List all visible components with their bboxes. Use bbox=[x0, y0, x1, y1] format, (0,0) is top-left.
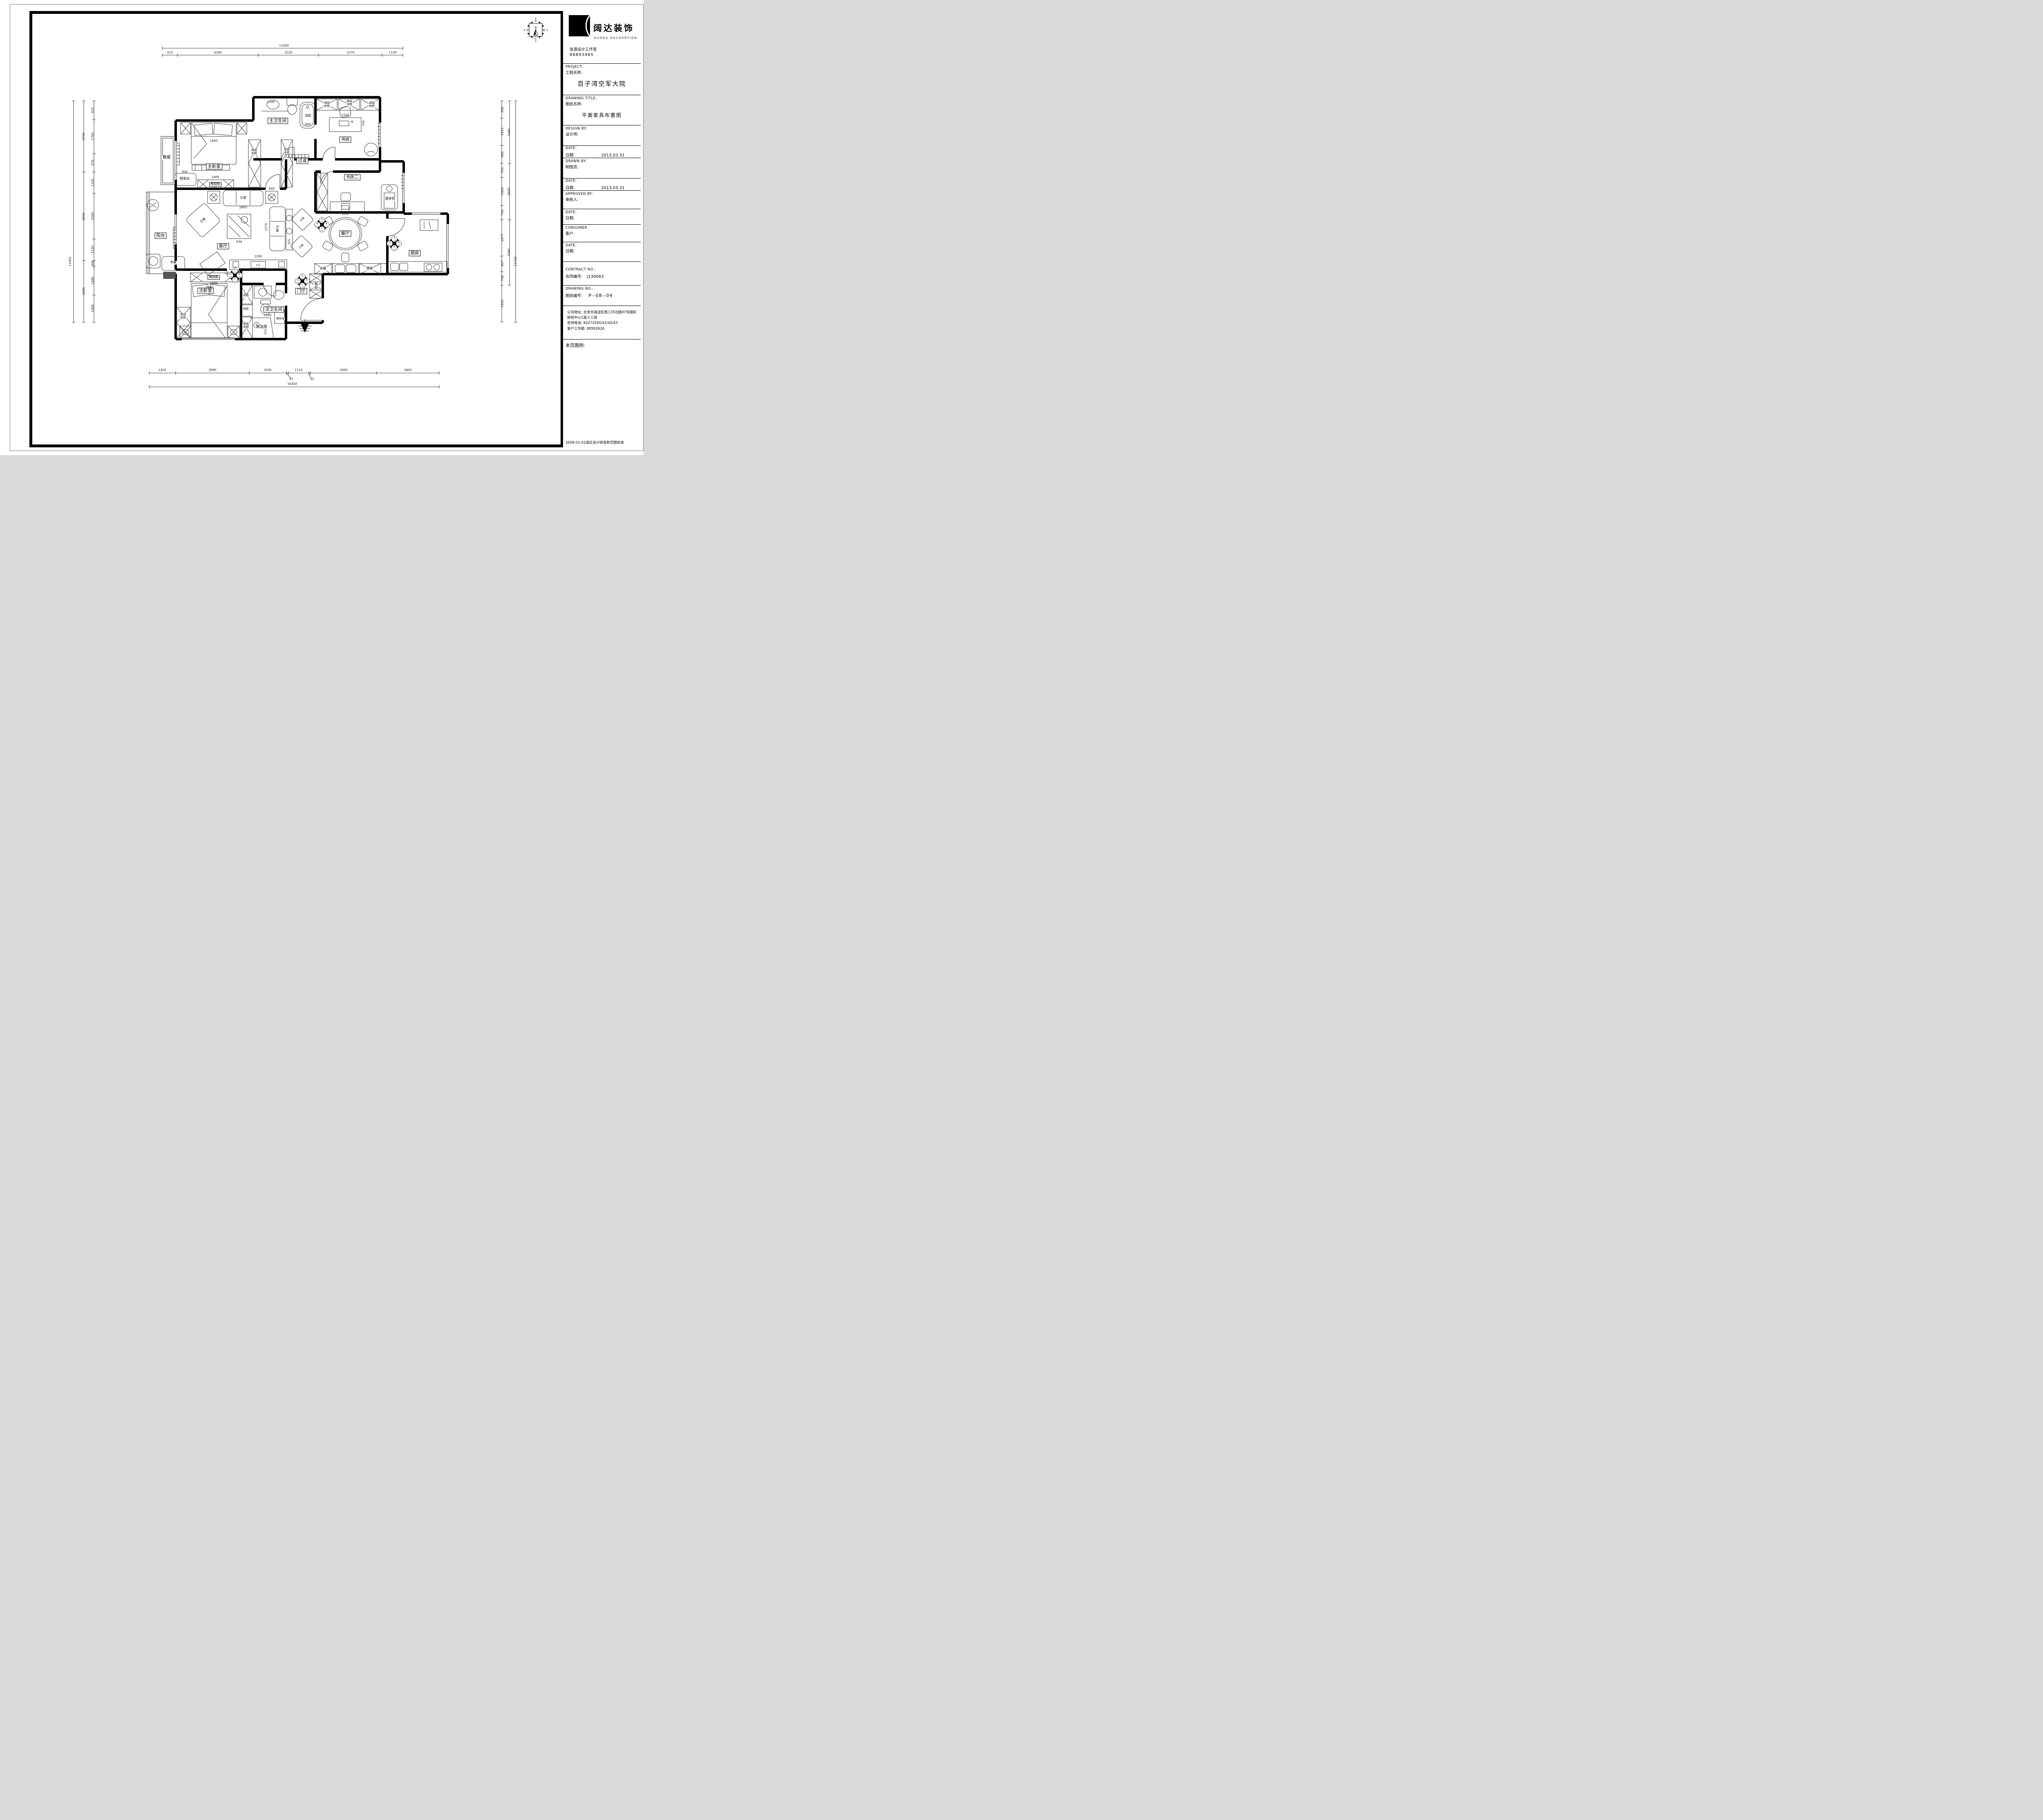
design-by-label-cn: 设计师: bbox=[563, 131, 641, 137]
approved-by-label-cn: 审核人: bbox=[563, 196, 641, 202]
company-name: 阔达装饰 bbox=[593, 22, 634, 34]
svg-text:C: C bbox=[302, 284, 303, 286]
furn-label-sofa: 沙发 bbox=[239, 197, 247, 200]
drawn-by-label-en: DRAWN BY: bbox=[563, 158, 641, 163]
contract-cell: CONTRACT NO.: 合同编号: J130063 bbox=[563, 261, 641, 285]
room-label-study2: 书房二 bbox=[344, 174, 360, 180]
furn-label-sofa: 沙发 bbox=[275, 225, 279, 232]
furn-label-tv: T.V. bbox=[256, 264, 261, 267]
date-cell-3: DATE: 日期: bbox=[563, 209, 641, 224]
date-cell-1: DATE: 日期: 2013.03.31 bbox=[563, 145, 641, 158]
consumer-cell: CONSUMER 客户: bbox=[563, 224, 641, 242]
lighting-compass-icon: AL-01 BL-01 CL-01 DL-01 bbox=[314, 217, 330, 234]
svg-text:L-01: L-01 bbox=[393, 249, 396, 250]
svg-text:C: C bbox=[393, 246, 395, 248]
dim: 1500 bbox=[205, 286, 213, 289]
drawing-title-label-en: DRAWING TITLE: bbox=[563, 95, 641, 100]
dim: 16450 bbox=[287, 382, 297, 386]
svg-text:A: A bbox=[302, 275, 303, 277]
dim: 1800 bbox=[209, 139, 218, 143]
dim: 730 bbox=[501, 209, 504, 216]
furn-label-wardrobe: 成品 衣柜 bbox=[243, 322, 249, 328]
dim: 468 bbox=[210, 187, 217, 190]
dim: 807 bbox=[501, 260, 504, 267]
dim: 3220 bbox=[284, 51, 293, 54]
drawing-title-cell: DRAWING TITLE: 图纸名称: 平面家具布置图 bbox=[563, 95, 641, 125]
drawing-no: P--08--04 bbox=[584, 293, 612, 298]
svg-text:A: A bbox=[393, 237, 395, 239]
svg-text:L-01: L-01 bbox=[305, 282, 308, 284]
dim: 1579 bbox=[265, 223, 268, 231]
company-address-2: 财经中心C座十三层 bbox=[567, 315, 639, 321]
svg-text:B: B bbox=[306, 279, 308, 281]
room-label-study: 书房 bbox=[340, 136, 351, 143]
dim: 1800 bbox=[209, 282, 218, 285]
dim: 1110 bbox=[294, 368, 303, 372]
svg-text:L-01: L-01 bbox=[388, 244, 391, 246]
dim: 1486 bbox=[91, 276, 94, 285]
project-cell: PROJECT: 工程名称: 百子湾空军大院 bbox=[563, 63, 641, 95]
dim: 2030 bbox=[263, 368, 272, 372]
project-name: 百子湾空军大院 bbox=[563, 79, 641, 88]
studio-phone: 88893485 bbox=[570, 53, 594, 57]
furn-label-tvcab-master: 电视柜 bbox=[209, 182, 221, 187]
walls bbox=[176, 97, 448, 339]
svg-text:L-01: L-01 bbox=[233, 281, 237, 282]
svg-text:D: D bbox=[526, 29, 528, 32]
design-date: 2013.03.31 bbox=[577, 153, 624, 158]
dim: 1877 bbox=[501, 233, 504, 242]
dim: 13300 bbox=[279, 44, 289, 47]
drawing-no-label-cn: 图纸编号: bbox=[563, 292, 582, 298]
furn-label-bathtub: 浴缸 bbox=[304, 114, 312, 118]
svg-text:L-01: L-01 bbox=[320, 230, 324, 232]
bay-window bbox=[161, 136, 175, 185]
svg-text:L-01: L-01 bbox=[238, 276, 241, 278]
studio-name: 金源设计工作室 bbox=[570, 46, 597, 52]
room-label-living: 客厅 bbox=[217, 243, 229, 249]
dim: 1760 bbox=[91, 132, 94, 141]
drawn-by-label-cn: 制图员: bbox=[563, 163, 641, 170]
footer-note: 2009-01-01阔达设计研发新范图标准 bbox=[566, 440, 624, 445]
room-label-dining: 餐厅 bbox=[340, 230, 351, 237]
svg-text:L-01: L-01 bbox=[325, 226, 328, 227]
furn-label-tallcab: 高柜 bbox=[366, 267, 373, 271]
svg-text:L-01: L-01 bbox=[301, 277, 304, 279]
contract-no: J130063 bbox=[584, 275, 604, 279]
dim: 1100 bbox=[388, 51, 397, 54]
dim: 551 bbox=[264, 328, 267, 335]
legend-label: 本页图例: bbox=[563, 339, 641, 348]
svg-text:A: A bbox=[321, 218, 323, 221]
dim: 1410 bbox=[501, 127, 504, 136]
dim: 3390 bbox=[507, 248, 511, 257]
furn-label-bookcab: 成品 书柜 bbox=[346, 100, 353, 106]
drawn-by-cell: DRAWN BY: 制图员: bbox=[563, 158, 641, 178]
dim: 1200 bbox=[266, 100, 275, 104]
address-cell: 公司地址: 北京市海淀区西三环北路87号国际 财经中心C座十三层 咨询电话: 8… bbox=[563, 306, 641, 339]
consumer-label-cn: 客户: bbox=[563, 230, 641, 236]
svg-text:A: A bbox=[234, 269, 236, 271]
svg-text:B: B bbox=[543, 29, 545, 32]
dim: 1408 bbox=[91, 304, 94, 313]
dim: 306 bbox=[91, 260, 94, 267]
drawing-no-cell: DRAWING NO.: 图纸编号: P--08--04 bbox=[563, 285, 641, 306]
svg-text:C: C bbox=[321, 227, 323, 230]
dim: 1200 bbox=[263, 314, 272, 317]
dim: 95 bbox=[310, 377, 315, 381]
dim: 95 bbox=[289, 377, 294, 381]
dim: 11885 bbox=[69, 256, 72, 267]
dim: 1120 bbox=[91, 245, 94, 254]
date-label-en: DATE: bbox=[563, 242, 641, 248]
date-label-en: DATE: bbox=[563, 209, 641, 214]
dim: 4600 bbox=[82, 212, 85, 221]
project-label-en: PROJECT: bbox=[563, 64, 641, 69]
date-label-en: DATE: bbox=[563, 146, 641, 150]
contract-label-cn: 合同编号: bbox=[563, 273, 582, 279]
dim: 810 bbox=[167, 51, 173, 54]
room-label-baywindow: 飘窗 bbox=[162, 156, 171, 160]
svg-text:B: B bbox=[326, 223, 327, 225]
dim: 940 bbox=[501, 151, 504, 158]
furn-label-dresser: 梳妆台 bbox=[179, 177, 190, 181]
dim: 3200 bbox=[82, 287, 85, 295]
svg-text:C: C bbox=[535, 37, 537, 40]
date-cell-4: DATE: 日期: bbox=[563, 242, 641, 261]
dim: 706 bbox=[501, 275, 504, 281]
dim: 900 bbox=[181, 170, 188, 174]
furn-label-lowcab: 低柜 bbox=[243, 308, 249, 311]
date-label-cn: 日期: bbox=[563, 184, 574, 190]
dim: 468 bbox=[268, 187, 275, 190]
dim: 3240 bbox=[507, 128, 511, 136]
furn-label-fridge: 冰箱 bbox=[319, 267, 326, 271]
drawing-title-label-cn: 图纸名称: bbox=[563, 100, 641, 107]
svg-text:L-01: L-01 bbox=[233, 272, 237, 273]
drawing-sheet: 主卧室主卫生间过道书房书房二客厅餐厅厨房次卧室门厅次卫生间阳台飘窗淋浴房梳妆台电… bbox=[0, 0, 644, 455]
drawing-title: 平面家具布置图 bbox=[563, 112, 641, 118]
dim: 900 bbox=[304, 123, 311, 126]
furn-label-treadmill: 跑步机 bbox=[385, 197, 396, 201]
date-cell-2: DATE: 日期: 2013.03.31 bbox=[563, 178, 641, 190]
company-phone: 咨询电话: 82272540/41/42/43 bbox=[567, 321, 639, 326]
dim: 305 bbox=[288, 239, 291, 245]
dim: 3990 bbox=[208, 368, 217, 372]
dim: 1480 bbox=[501, 187, 504, 195]
furn-label-tallcab2: 高柜 bbox=[243, 294, 249, 297]
svg-text:D: D bbox=[230, 273, 231, 276]
svg-text:B: B bbox=[239, 273, 240, 276]
date-label-cn: 日期: bbox=[563, 152, 574, 158]
design-by-cell: DESIGN BY: 设计师: bbox=[563, 125, 641, 145]
lighting-compass-icon: AL-01 BL-01 CL-01 DL-01 bbox=[295, 273, 310, 290]
dim: 4300 bbox=[213, 51, 222, 54]
svg-text:D: D bbox=[389, 241, 391, 244]
dim: 2200 bbox=[254, 255, 262, 258]
dim: 710 bbox=[501, 167, 504, 174]
room-label-balcony: 阳台 bbox=[155, 232, 167, 239]
approved-by-label-en: APPROVED BY: bbox=[563, 191, 641, 196]
lighting-compass-icon: AL-01 BL-01 CL-01 DL-01 bbox=[227, 268, 243, 285]
dim: 3700 bbox=[82, 132, 85, 141]
dim: 2003 bbox=[239, 206, 247, 209]
furn-label-wardrobe: 成品 衣柜 bbox=[251, 149, 257, 155]
svg-text:L-01: L-01 bbox=[301, 286, 304, 288]
date-label-en: DATE: bbox=[563, 179, 641, 183]
legend-cell: 本页图例: 2009-01-01阔达设计研发新范图标准 bbox=[563, 339, 641, 447]
svg-text:L-01: L-01 bbox=[320, 221, 324, 223]
logo-cell: 阔达装饰 KUODA DECORRTION 金源设计工作室 88893485 bbox=[563, 11, 641, 63]
contract-label-en: CONTRACT NO.: bbox=[563, 262, 641, 272]
svg-text:L-01: L-01 bbox=[397, 244, 400, 246]
date-label-cn: 日期: bbox=[563, 214, 641, 221]
furn-label-wardrobe: 成品 衣柜 bbox=[324, 101, 330, 107]
drawn-date: 2013.03.31 bbox=[577, 186, 624, 190]
dim: 700 bbox=[362, 120, 365, 127]
dim: 970 bbox=[91, 159, 94, 166]
room-label-bath2: 次卫生间 bbox=[264, 306, 284, 313]
customer-dept-phone: 客户工作部: 88582626 bbox=[567, 326, 639, 332]
svg-text:L-01: L-01 bbox=[316, 226, 319, 227]
furn-label-wardrobe: 成品 衣柜 bbox=[284, 148, 290, 154]
dim: 11725 bbox=[514, 256, 517, 267]
date-label-cn: 日期: bbox=[563, 248, 641, 254]
furn-label-desk: 书桌 bbox=[170, 261, 177, 265]
drawing-no-label-en: DRAWING NO.: bbox=[563, 286, 641, 291]
dim: 970 bbox=[91, 107, 94, 114]
dim: 1100 bbox=[91, 178, 94, 187]
company-name-en: KUODA DECORRTION bbox=[594, 36, 637, 40]
svg-text:L-01: L-01 bbox=[393, 240, 396, 241]
dim: 2920 bbox=[507, 187, 511, 196]
furn-label-wardrobe: 成品 衣柜 bbox=[369, 101, 375, 107]
furn-label-tvcab-bedroom2: 电视柜 bbox=[208, 275, 220, 280]
dim: 934 bbox=[236, 240, 242, 243]
room-label-master-bath: 主卫生间 bbox=[268, 118, 288, 124]
svg-text:B: B bbox=[398, 241, 400, 244]
design-by-label-en: DESIGN BY: bbox=[563, 125, 641, 131]
company-logo-icon bbox=[569, 15, 590, 36]
room-label-hallway: 过道 bbox=[297, 158, 308, 164]
svg-text:A: A bbox=[535, 19, 537, 22]
consumer-label-en: CONSUMER bbox=[563, 225, 641, 230]
svg-text:L-01: L-01 bbox=[229, 276, 232, 278]
north-orientation-icon: A B C D S bbox=[524, 18, 548, 43]
window-lines bbox=[175, 123, 448, 339]
svg-text:L-01: L-01 bbox=[296, 282, 300, 284]
dim: 1500 bbox=[341, 114, 349, 117]
dim: 1450 bbox=[158, 368, 166, 372]
dim: 3600 bbox=[339, 368, 348, 372]
dim: 3400 bbox=[403, 368, 412, 372]
company-address-1: 公司地址: 北京市海淀区西三环北路87号国际 bbox=[567, 310, 639, 315]
dim: 1910 bbox=[501, 299, 504, 308]
dim: 890 bbox=[501, 106, 504, 113]
lighting-compass-icon: AL-01 BL-01 CL-01 DL-01 bbox=[387, 236, 402, 253]
furn-label-wardrobe: 成品 衣柜 bbox=[180, 313, 186, 319]
dim: 1800 bbox=[211, 176, 219, 179]
svg-text:C: C bbox=[234, 278, 236, 280]
svg-text:D: D bbox=[317, 223, 318, 225]
furn-label-shoecab: 鞋柜 bbox=[314, 282, 318, 290]
furn-label-mopsink: 拖布池 bbox=[276, 317, 285, 320]
dim: 2380 bbox=[91, 212, 94, 220]
approved-by-cell: APPROVED BY: 审核人: bbox=[563, 190, 641, 209]
project-label-cn: 工程名称: bbox=[563, 69, 641, 75]
title-block: 阔达装饰 KUODA DECORRTION 金源设计工作室 88893485 P… bbox=[561, 11, 641, 447]
room-label-master-bedroom: 主卧室 bbox=[206, 163, 222, 170]
dim: 3370 bbox=[346, 51, 355, 54]
room-label-kitchen: 厨房 bbox=[409, 250, 421, 256]
svg-text:D: D bbox=[297, 279, 299, 281]
